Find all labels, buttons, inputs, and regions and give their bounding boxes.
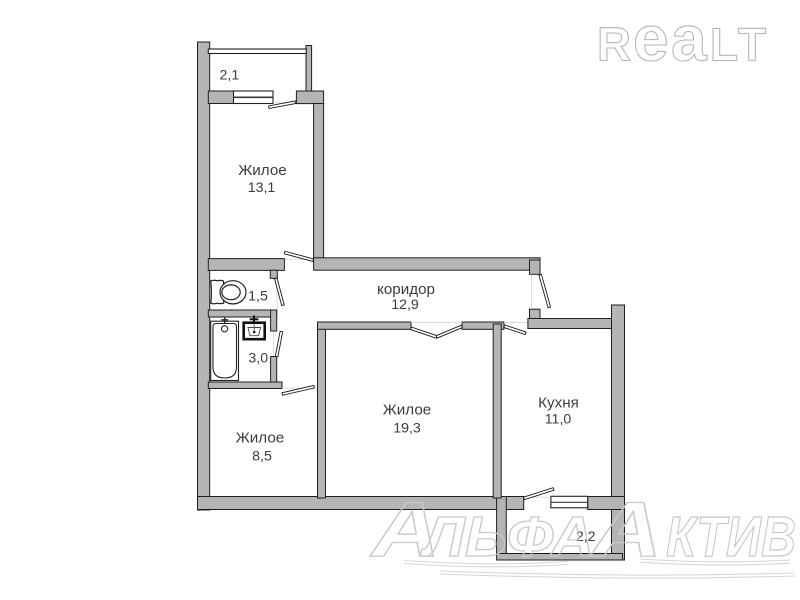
svg-text:13,1: 13,1 (248, 180, 276, 196)
svg-text:Жилое: Жилое (238, 162, 286, 179)
svg-text:2,1: 2,1 (220, 68, 240, 84)
svg-text:3,0: 3,0 (248, 351, 268, 367)
svg-text:T: T (738, 19, 766, 71)
svg-text:КТИВ: КТИВ (666, 505, 796, 569)
svg-text:Кухня: Кухня (538, 395, 579, 412)
svg-text:R: R (597, 18, 631, 71)
svg-text:коридор: коридор (377, 281, 435, 298)
svg-text:ЛЬФА: ЛЬФА (420, 505, 594, 569)
svg-text:Жилое: Жилое (383, 402, 431, 419)
svg-text:12,9: 12,9 (391, 297, 419, 313)
svg-text:8,5: 8,5 (252, 449, 272, 465)
svg-text:1,5: 1,5 (248, 289, 268, 305)
svg-text:L: L (710, 19, 738, 71)
svg-text:e: e (633, 3, 669, 75)
svg-text:Жилое: Жилое (236, 430, 284, 447)
svg-text:19,3: 19,3 (393, 421, 421, 437)
svg-text:11,0: 11,0 (545, 412, 572, 428)
svg-text:a: a (671, 3, 707, 75)
